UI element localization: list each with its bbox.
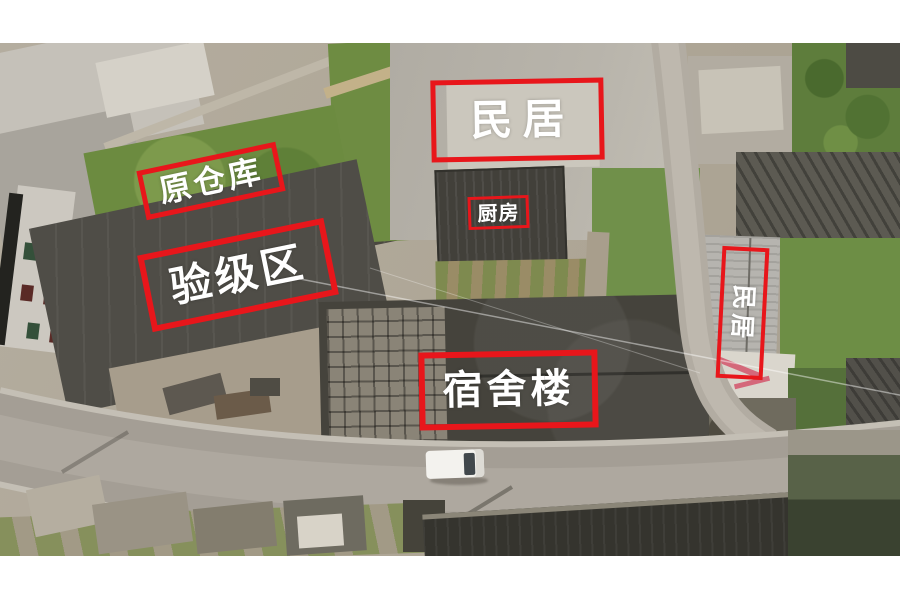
top-white-band (0, 0, 900, 43)
annotation-box-kitchen: 厨房 (467, 195, 529, 230)
bottom-right-wall-and-trees (788, 430, 900, 556)
annotation-box-residence-right: 民居 (716, 246, 770, 380)
annotation-box-dormitory: 宿舍楼 (418, 349, 598, 430)
bottom-white-band (0, 556, 900, 600)
annotation-label: 验级区 (166, 241, 310, 310)
annotation-box-residence-top: 民居 (430, 77, 604, 162)
white-van (426, 449, 485, 479)
white-tarp (297, 513, 344, 548)
annotation-label: 民居 (729, 283, 757, 342)
aerial-photo: 民居 原仓库 验级区 厨房 宿舍楼 民居 (0, 43, 900, 556)
annotation-label: 民居 (460, 98, 575, 142)
grass-right-middle (780, 238, 900, 370)
van-windshield (464, 453, 476, 475)
annotation-label: 厨房 (477, 202, 520, 223)
topright-corner-dark-roof (846, 43, 900, 88)
gravel-pile (698, 66, 783, 134)
shed (193, 501, 277, 554)
debris-pile (250, 378, 280, 396)
facade-window (26, 322, 40, 339)
facade-window (20, 284, 34, 301)
pole-shadow (62, 432, 128, 472)
screenshot-stage: 民居 原仓库 验级区 厨房 宿舍楼 民居 (0, 0, 900, 600)
annotation-label: 宿舍楼 (442, 369, 575, 411)
